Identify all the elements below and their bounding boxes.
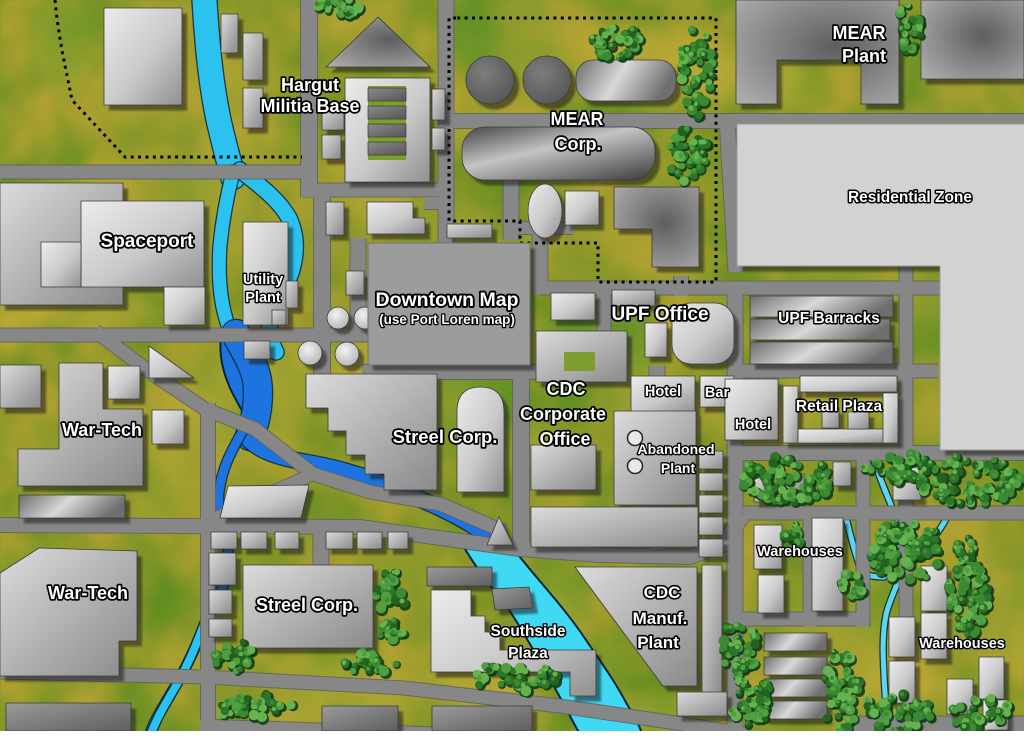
- svg-text:Militia Base: Militia Base: [260, 96, 359, 116]
- svg-text:Plant: Plant: [637, 633, 679, 652]
- svg-text:Plant: Plant: [245, 290, 281, 306]
- svg-text:Retail Plaza: Retail Plaza: [796, 398, 883, 415]
- svg-text:Hotel: Hotel: [735, 417, 771, 433]
- svg-text:Spaceport: Spaceport: [101, 231, 195, 252]
- svg-text:Plant: Plant: [842, 46, 886, 66]
- svg-text:Plant: Plant: [661, 460, 696, 476]
- svg-text:UPF Office: UPF Office: [611, 304, 708, 325]
- svg-text:CDC: CDC: [644, 583, 681, 602]
- svg-text:Manuf.: Manuf.: [633, 609, 688, 628]
- svg-text:Bar: Bar: [705, 385, 730, 401]
- svg-text:War-Tech: War-Tech: [48, 583, 128, 603]
- svg-text:MEAR: MEAR: [551, 109, 604, 129]
- svg-text:(use Port Loren map): (use Port Loren map): [379, 312, 515, 327]
- svg-text:Hargut: Hargut: [281, 75, 339, 95]
- svg-text:Streel Corp.: Streel Corp.: [393, 426, 498, 447]
- svg-text:Hotel: Hotel: [645, 384, 681, 400]
- svg-text:Corporate: Corporate: [520, 404, 606, 424]
- svg-text:Residential Zone: Residential Zone: [848, 189, 972, 206]
- svg-text:UPF Barracks: UPF Barracks: [778, 310, 880, 327]
- svg-text:War-Tech: War-Tech: [62, 420, 142, 440]
- svg-text:Plaza: Plaza: [508, 645, 548, 662]
- svg-text:MEAR: MEAR: [833, 23, 886, 43]
- svg-text:Warehouses: Warehouses: [757, 544, 843, 560]
- svg-text:Downtown Map: Downtown Map: [376, 289, 519, 311]
- svg-text:Corp.: Corp.: [555, 134, 602, 154]
- svg-text:Southside: Southside: [491, 623, 566, 640]
- svg-text:Streel Corp.: Streel Corp.: [256, 595, 358, 615]
- svg-text:CDC: CDC: [547, 379, 586, 399]
- svg-text:Abandoned: Abandoned: [638, 441, 715, 457]
- svg-text:Warehouses: Warehouses: [919, 636, 1005, 652]
- svg-text:Office: Office: [539, 429, 590, 449]
- svg-text:Utility: Utility: [243, 272, 283, 288]
